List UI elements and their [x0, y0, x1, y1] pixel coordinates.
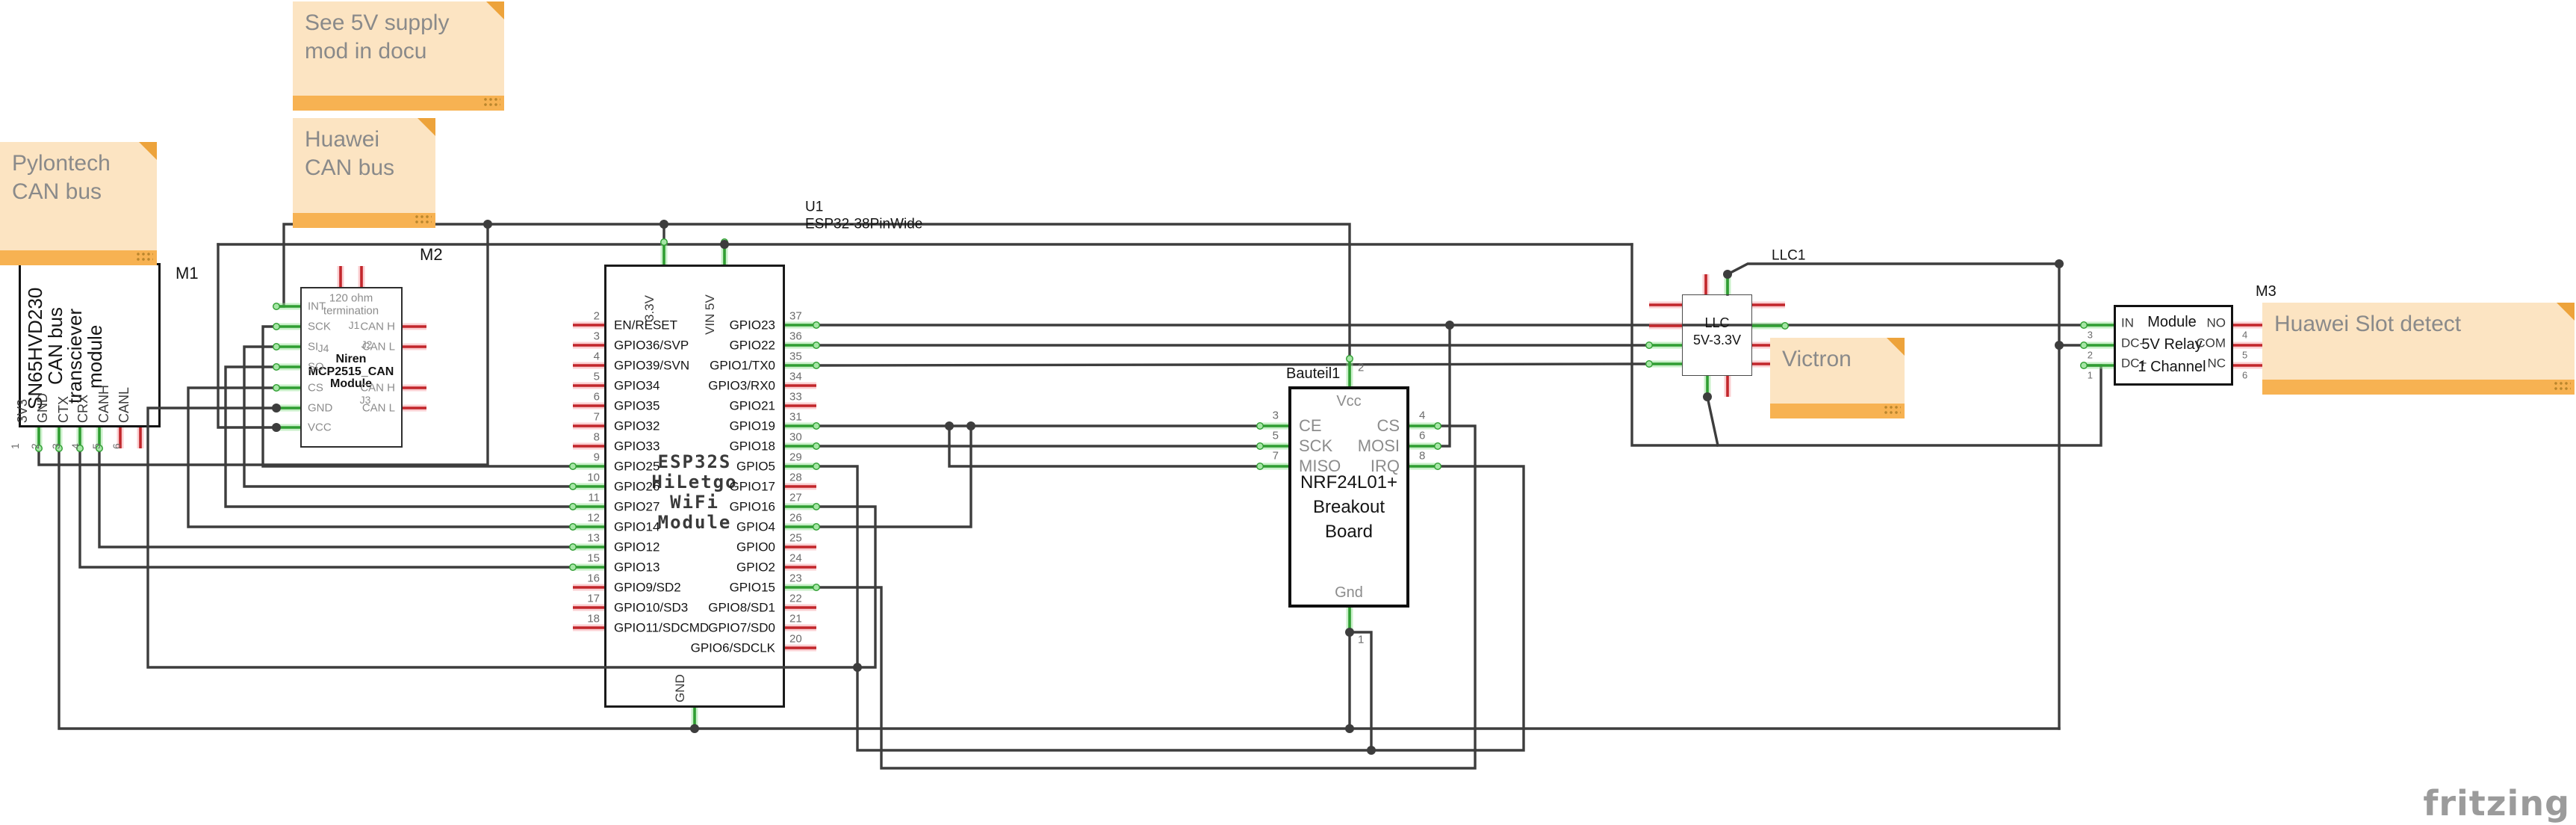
sticky-note-5v-supply[interactable]: See 5V supply mod in docu [293, 1, 504, 111]
sticky-note-huawei-can[interactable]: Huawei CAN bus [293, 118, 435, 228]
note-text: Victron [1782, 345, 1894, 374]
note-text: Pylontech CAN bus [12, 149, 146, 207]
note-bar[interactable] [293, 96, 504, 111]
schematic-canvas: 123456M1SN65HVD230CAN bustranscievermodu… [0, 0, 2576, 825]
note-grip-icon[interactable] [2554, 382, 2571, 392]
notes-layer: See 5V supply mod in docu Huawei CAN bus… [0, 0, 2576, 825]
sticky-note-huawei-slot[interactable]: Huawei Slot detect [2262, 303, 2575, 395]
note-bar[interactable] [0, 250, 157, 265]
note-bar[interactable] [293, 213, 435, 228]
sticky-note-pylontech[interactable]: Pylontech CAN bus [0, 142, 157, 265]
note-grip-icon[interactable] [415, 215, 432, 226]
note-text: See 5V supply mod in docu [305, 9, 494, 67]
fritzing-watermark: fritzing [2423, 783, 2570, 824]
sticky-note-victron[interactable]: Victron [1770, 338, 1905, 418]
note-grip-icon[interactable] [137, 253, 153, 263]
note-grip-icon[interactable] [484, 98, 500, 108]
note-bar[interactable] [2262, 380, 2575, 395]
note-text: Huawei Slot detect [2274, 310, 2564, 339]
note-text: Huawei CAN bus [305, 126, 425, 183]
note-grip-icon[interactable] [1884, 406, 1901, 416]
